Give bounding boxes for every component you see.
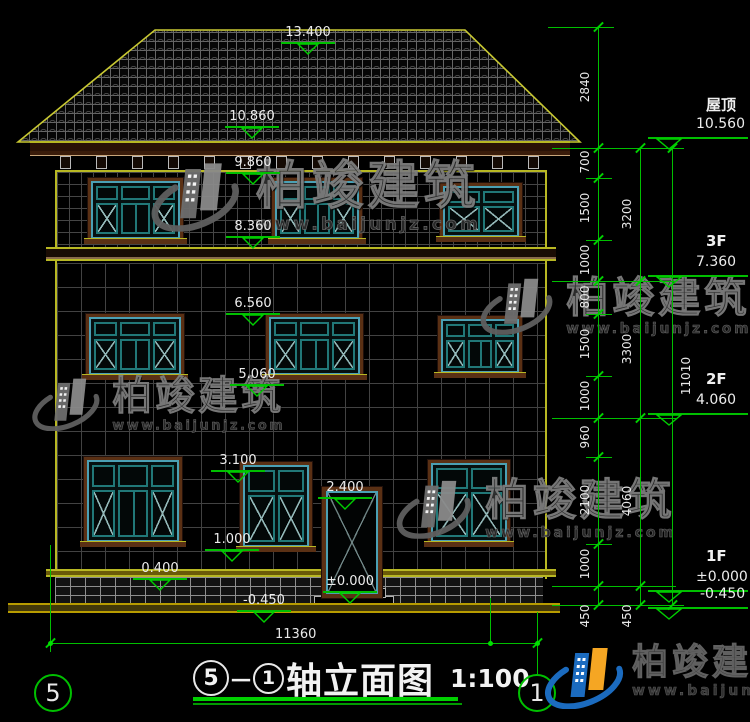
casement-pane	[300, 339, 329, 370]
casement-pane	[278, 495, 305, 542]
casement-pane	[92, 490, 115, 537]
title-axis-from-bubble: 5	[193, 660, 229, 696]
elevation-triangle-icon	[334, 498, 356, 510]
level-connector-line	[548, 27, 614, 28]
floor-elevation-value: 10.560	[696, 116, 745, 132]
brand-swoosh-icon	[392, 478, 479, 539]
window-sill	[84, 238, 187, 244]
watermark-url: www.baijunjz.com	[566, 320, 750, 337]
dim-chain-line	[640, 148, 641, 605]
elevation-triangle-icon	[242, 314, 264, 326]
elevation-triangle-icon	[656, 414, 682, 426]
elevation-marker-value: 2.400	[303, 480, 387, 495]
brand-swoosh-icon	[540, 645, 632, 709]
level-connector-line	[552, 586, 676, 587]
dim-value: 11010	[679, 341, 693, 411]
elevation-triangle-icon	[656, 591, 682, 603]
elevation-triangle-icon	[297, 43, 319, 55]
dim-value: 2840	[578, 52, 592, 122]
watermark-url: www.baijunjz.com	[112, 417, 285, 432]
grid-axis-bubble: 5	[34, 674, 72, 712]
window-sill	[436, 236, 526, 242]
casement-pane	[94, 339, 117, 370]
transom-pane	[151, 465, 174, 487]
bottom-dim-line	[50, 643, 537, 644]
brand-url: www.baijunjz.com	[632, 683, 750, 699]
elevation-triangle-icon	[339, 592, 361, 604]
elevation-marker-value: -0.450	[222, 593, 306, 608]
transom-pane	[483, 191, 515, 203]
casement-pane	[96, 203, 118, 234]
dim-value: 3300	[620, 314, 634, 384]
window-sill	[434, 372, 526, 378]
window-sill	[80, 541, 186, 547]
extension-line	[50, 545, 51, 652]
casement-pane	[495, 340, 514, 368]
watermark: 柏竣建筑 www.baijunjz.com	[476, 276, 750, 337]
casement-pane	[468, 340, 492, 368]
casement-pane	[446, 340, 465, 368]
casement-pane	[118, 490, 148, 537]
elevation-marker-value: 3.100	[196, 453, 280, 468]
dim-chain-line	[598, 27, 599, 605]
watermark: 柏竣建筑 www.baijunjz.com	[146, 160, 481, 234]
transom-pane	[94, 322, 117, 336]
transom-pane	[274, 322, 297, 336]
cad-elevation-drawing: 5 － 1 轴立面图 1:100 柏竣建筑 www.baijunjz.com 1…	[0, 0, 750, 722]
elevation-marker-value: 5.060	[215, 367, 299, 382]
transom-pane	[446, 324, 465, 337]
elevation-triangle-icon	[149, 579, 171, 591]
dim-value: 450	[578, 581, 592, 651]
dim-value: 960	[578, 402, 592, 472]
brand-logo: 柏竣建筑 www.baijunjz.com	[540, 645, 750, 713]
elevation-marker-value: ±0.000	[308, 574, 392, 589]
dim-value: 4060	[620, 466, 634, 536]
elevation-marker-value: 13.400	[266, 25, 350, 40]
dim-node-dot	[488, 641, 493, 646]
elevation-triangle-icon	[241, 127, 263, 139]
brand-building-icon	[540, 645, 632, 713]
elevation-marker-value: 9.860	[211, 155, 295, 170]
dim-value: 3200	[620, 179, 634, 249]
floor-label: 1F	[706, 547, 727, 565]
transom-pane	[120, 322, 150, 336]
eave-bracket	[492, 156, 503, 169]
elevation-triangle-icon	[246, 385, 268, 397]
transom-pane	[332, 322, 355, 336]
window-sill	[424, 541, 514, 547]
elevation-marker-value: 6.560	[211, 296, 295, 311]
eave-bracket	[528, 156, 539, 169]
floor-elevation-value: 7.360	[696, 254, 736, 270]
transom-pane	[153, 322, 176, 336]
casement-pane	[151, 490, 174, 537]
window-frame	[87, 460, 179, 542]
elevation-marker-value: 10.860	[210, 109, 294, 124]
dim-chain-line	[672, 148, 673, 605]
eave-bracket	[60, 156, 71, 169]
casement-pane	[332, 339, 355, 370]
brand-swoosh-icon	[476, 276, 561, 335]
elevation-triangle-icon	[242, 173, 264, 185]
floor-elevation-value: -0.450	[700, 586, 745, 602]
eave-bracket	[96, 156, 107, 169]
elevation-triangle-icon	[656, 276, 682, 288]
elevation-triangle-icon	[242, 237, 264, 249]
elevation-marker-value: 8.360	[211, 219, 295, 234]
window	[86, 314, 184, 378]
extension-line	[490, 598, 491, 643]
floor-elevation-value: ±0.000	[696, 569, 748, 585]
transom-pane	[300, 322, 329, 336]
elevation-triangle-icon	[253, 611, 275, 623]
dim-node-dot	[48, 641, 53, 646]
window-frame	[89, 317, 181, 375]
casement-pane	[120, 339, 150, 370]
dim-value: 2100	[578, 465, 592, 535]
floor-label: 2F	[706, 370, 727, 388]
brand-swoosh-icon	[28, 376, 107, 431]
eave-bracket	[132, 156, 143, 169]
transom-pane	[118, 465, 148, 487]
title-underline-thick	[193, 697, 458, 701]
level-connector-line	[552, 605, 676, 606]
title-axis-to-bubble: 1	[253, 663, 284, 694]
eave-fascia	[30, 141, 570, 156]
floor-elevation-value: 4.060	[696, 392, 736, 408]
transom-pane	[92, 465, 115, 487]
window-sill	[268, 238, 366, 244]
floor-label: 屋顶	[706, 94, 736, 115]
floor-belt-band	[46, 247, 556, 261]
bottom-dim-value: 11360	[275, 627, 316, 642]
elevation-marker-value: 0.400	[118, 561, 202, 576]
floor-label: 3F	[706, 232, 727, 250]
transom-pane	[248, 470, 275, 492]
transom-pane	[278, 470, 305, 492]
elevation-triangle-icon	[221, 550, 243, 562]
casement-pane	[153, 339, 176, 370]
casement-pane	[483, 206, 515, 232]
title-dash: －	[229, 661, 253, 696]
dim-value: 450	[620, 581, 634, 651]
casement-pane	[274, 339, 297, 370]
elevation-triangle-icon	[227, 471, 249, 483]
elevation-marker-value: 1.000	[190, 532, 274, 547]
transom-pane	[96, 186, 118, 200]
title-underline-thin	[193, 703, 462, 705]
window	[84, 457, 182, 545]
brand-name: 柏竣建筑	[632, 645, 750, 681]
